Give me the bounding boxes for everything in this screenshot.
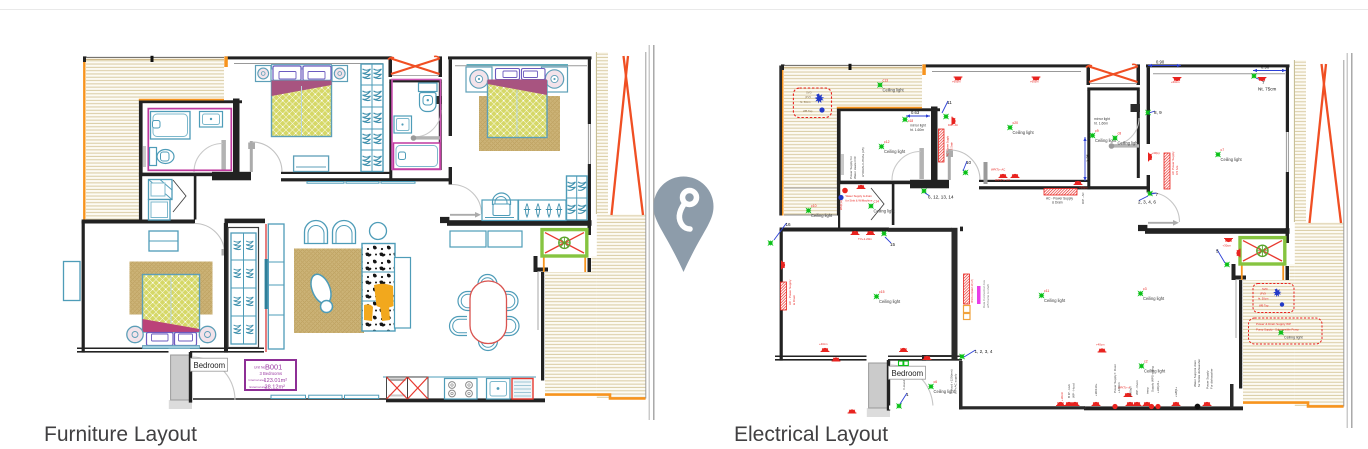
svg-text:AC - Power Supply: AC - Power Supply: [947, 135, 950, 156]
svg-text:Water Heater DC: Water Heater DC: [853, 155, 857, 179]
svg-text:PrROLLD(leten V(1-P): PrROLLD(leten V(1-P): [971, 279, 974, 303]
svg-text:Bedroom: Bedroom: [892, 369, 924, 378]
svg-text:11: 11: [947, 100, 952, 105]
svg-text:c9: c9: [1095, 129, 1099, 133]
svg-text:V-Hood: V-Hood: [902, 380, 906, 390]
svg-text:6, 12, 13, 14: 6, 12, 13, 14: [928, 195, 954, 200]
svg-text:10: 10: [966, 160, 972, 165]
svg-text:Electrical Layout: Electrical Layout: [734, 423, 888, 446]
svg-text:+30cm: +30cm: [1060, 391, 1064, 401]
svg-text:0.90: 0.90: [1261, 65, 1270, 70]
svg-text:WP+AC supply: WP+AC supply: [954, 373, 958, 394]
svg-text:w/5 frame to shaft: w/5 frame to shaft: [986, 284, 990, 308]
svg-text:ht. 50cm: ht. 50cm: [800, 100, 811, 104]
svg-text:Power & Drain Supply WP: Power & Drain Supply WP: [1256, 322, 1291, 326]
svg-text:+60cm: +60cm: [952, 80, 961, 84]
svg-text:+60cm: +60cm: [1030, 80, 1039, 84]
svg-text:Bedroom: Bedroom: [194, 361, 226, 370]
svg-text:Ceiling light: Ceiling light: [884, 149, 906, 154]
svg-text:+30cm: +30cm: [1223, 244, 1232, 248]
svg-text:+180s]+: +180s]+: [1129, 386, 1133, 397]
svg-text:HYDRAU HTRAs (A5): HYDRAU HTRAs (A5): [861, 147, 865, 177]
svg-text:Supply WPS-celing: Supply WPS-celing: [1151, 366, 1155, 392]
svg-text:c2: c2: [1144, 360, 1148, 364]
svg-text:Furniture Layout: Furniture Layout: [44, 423, 197, 446]
svg-text:+40cm: +40cm: [1096, 343, 1105, 347]
svg-text:1.35: 1.35: [1085, 153, 1090, 162]
svg-text:Ceiling light: Ceiling light: [883, 88, 905, 93]
svg-text:c7: c7: [1221, 148, 1225, 152]
svg-text:TV+1.20m: TV+1.20m: [858, 237, 872, 241]
svg-text:7: 7: [1156, 192, 1159, 197]
svg-text:B IP - Hub: B IP - Hub: [1067, 384, 1071, 398]
svg-text:For dishwasher: For dishwasher: [1210, 368, 1214, 389]
svg-text:c15: c15: [879, 290, 885, 294]
svg-text:8, 9: 8, 9: [1154, 110, 1162, 115]
svg-text:WP(T)+ AC: WP(T)+ AC: [995, 178, 1011, 182]
svg-text:WB Tap: WB Tap: [803, 109, 813, 113]
svg-text:WP - Hood: WP - Hood: [1072, 383, 1076, 398]
svg-text:1, 2, 3, 4: 1, 2, 3, 4: [975, 349, 993, 354]
svg-text:SVD: SVD: [1262, 287, 1268, 291]
svg-text:Ceiling light: Ceiling light: [1044, 298, 1066, 303]
svg-text:15: 15: [890, 242, 896, 247]
svg-text:3 Bedrooms: 3 Bedrooms: [260, 371, 283, 376]
svg-text:for Sink & W/Machine: for Sink & W/Machine: [846, 199, 873, 203]
svg-text:D/P - AC: D/P - AC: [1081, 192, 1085, 204]
svg-text:ht. 1.60m: ht. 1.60m: [910, 128, 924, 132]
svg-text:+60cm: +60cm: [1079, 186, 1088, 190]
svg-text:Ceiling light: Ceiling light: [1144, 369, 1166, 374]
svg-text:& Drain: & Drain: [792, 295, 796, 305]
svg-text:mirror light: mirror light: [910, 124, 926, 128]
svg-text:+wB]1+: +wB]1+: [1174, 387, 1178, 397]
svg-text:16: 16: [786, 222, 792, 227]
svg-text:Water Supply & drain: Water Supply & drain: [846, 194, 873, 198]
svg-text:mirror light: mirror light: [1094, 117, 1110, 121]
svg-text:28.12m²: 28.12m²: [265, 385, 286, 391]
svg-text:& Drain: & Drain: [951, 141, 954, 150]
svg-text:(PV)!: (PV)!: [805, 95, 811, 99]
svg-text:WP - Oven: WP - Oven: [1135, 380, 1139, 395]
svg-text:+40(s): +40(s): [1152, 151, 1160, 155]
svg-text:Ceiling light: Ceiling light: [1284, 336, 1303, 340]
svg-text:SVD: SVD: [806, 91, 812, 95]
svg-text:Ceiling light: Ceiling light: [879, 299, 901, 304]
svg-text:Unit No: Unit No: [254, 366, 265, 370]
svg-text:Ceiling light: Ceiling light: [1221, 157, 1243, 162]
svg-text:tmnp: tmnp: [1146, 387, 1150, 394]
svg-text:for Sink& dishwasher: for Sink& dishwasher: [1197, 359, 1201, 387]
svg-text:1: 1: [906, 392, 909, 397]
svg-text:Ceiling light: Ceiling light: [1013, 130, 1035, 135]
svg-text:(PV)!: (PV)!: [1260, 292, 1266, 296]
svg-text:c10: c10: [811, 204, 817, 208]
svg-text:Ceiling light: Ceiling light: [1143, 296, 1165, 301]
svg-text:5: 5: [1216, 249, 1219, 254]
svg-text:0.5 lvls: 0.5 lvls: [1175, 165, 1179, 175]
svg-text:c12: c12: [884, 140, 890, 144]
svg-text:ht. 1.60m: ht. 1.60m: [1094, 122, 1108, 126]
svg-text:c20: c20: [1013, 121, 1019, 125]
svg-text:c11: c11: [1044, 289, 1049, 293]
svg-text:c18: c18: [908, 119, 913, 123]
svg-text:c14: c14: [874, 200, 880, 204]
svg-text:2, 3, 4, 6: 2, 3, 4, 6: [1138, 200, 1156, 205]
svg-text:Pump Supply - Submersible Pump: Pump Supply - Submersible Pump: [1256, 328, 1299, 332]
svg-text:c3: c3: [1143, 287, 1147, 291]
svg-text:c8: c8: [1118, 132, 1122, 136]
svg-text:0.63: 0.63: [911, 110, 920, 115]
svg-text:+60cm: +60cm: [1171, 80, 1180, 84]
svg-text:c6: c6: [934, 380, 938, 384]
svg-text:Ceiling light: Ceiling light: [1118, 141, 1140, 146]
svg-text:Ceiling light: Ceiling light: [811, 213, 833, 218]
svg-text:123.01m²: 123.01m²: [264, 378, 288, 384]
svg-text:WB Tap: WB Tap: [1259, 304, 1269, 308]
svg-text:+120cm: +120cm: [1117, 382, 1121, 393]
svg-text:+90/110+: +90/110+: [1094, 383, 1098, 396]
svg-text:+40cm: +40cm: [819, 342, 828, 346]
svg-text:+HO)21+: +HO)21+: [1156, 380, 1160, 393]
svg-text:0.90: 0.90: [1156, 60, 1165, 65]
svg-text:c13: c13: [883, 79, 889, 83]
svg-text:Ceiling light: Ceiling light: [874, 209, 896, 214]
svg-text:WP(T)+ AC: WP(T)+ AC: [991, 168, 1005, 172]
svg-text:Nt. 75cm: Nt. 75cm: [1258, 87, 1277, 92]
svg-text:ht. 50cm: ht. 50cm: [1258, 297, 1269, 301]
svg-text:& Drain: & Drain: [1052, 201, 1063, 205]
